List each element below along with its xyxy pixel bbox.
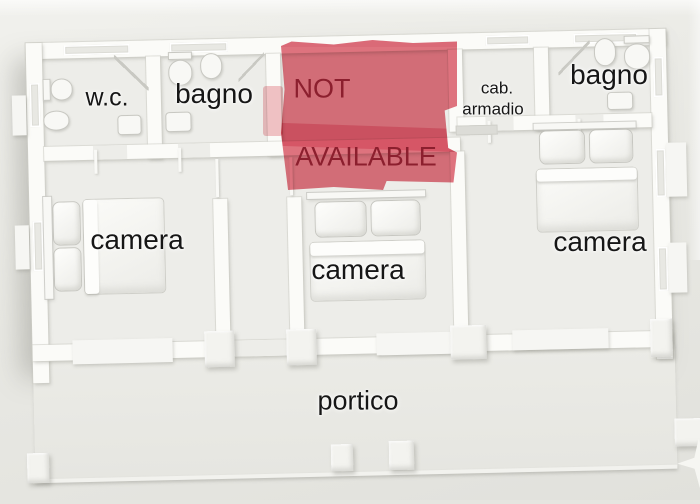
label-portico: portico (317, 388, 398, 415)
corridor-portico-opening (230, 339, 290, 356)
photo-highlight-right (688, 0, 700, 260)
sink-icon (117, 115, 141, 136)
sink-icon (607, 92, 633, 111)
window-right-bagno (653, 57, 664, 97)
bed-pillow (540, 131, 585, 164)
label-bagno-right: bagno (570, 61, 648, 89)
bed-pillow (53, 202, 80, 245)
label-cab: cab. (481, 80, 513, 97)
photo-highlight-top (0, 0, 700, 16)
pillar (204, 331, 235, 368)
overlay-spill (263, 86, 283, 136)
window-left-wc (30, 83, 41, 127)
portico-column (331, 444, 354, 471)
toilet-tank-icon (42, 79, 50, 101)
bidet-icon (43, 110, 69, 131)
french-window-camera1 (72, 338, 173, 364)
bed-pillow (590, 130, 633, 163)
label-bagno-left: bagno (175, 80, 253, 108)
sill-right-bottom (668, 242, 687, 292)
label-camera-right: camera (553, 228, 646, 256)
portico-column (389, 441, 415, 471)
window-right-camera-2 (657, 247, 668, 291)
pillar (286, 329, 317, 366)
sill-right-top (666, 142, 687, 196)
portico-column (674, 418, 700, 447)
window-right-camera-1 (655, 149, 666, 197)
door-leaf-bagno-left (178, 148, 182, 172)
closet-shelf (456, 125, 498, 136)
label-camera-middle: camera (311, 256, 404, 284)
window-top-cab-armadio (486, 35, 530, 46)
door-gap-bagno-left (178, 143, 210, 158)
sink-icon (165, 112, 191, 133)
label-armadio: armadio (462, 101, 523, 118)
bed-pillow (54, 248, 81, 291)
portico-column (27, 453, 50, 483)
window-left-camera (33, 221, 44, 271)
pillar (450, 325, 487, 360)
floor-plan-scene: w.c. bagno NOT AVAILABLE cab. armadio ba… (0, 0, 700, 500)
label-available: AVAILABLE (295, 144, 437, 171)
toilet-icon (50, 78, 72, 100)
door-leaf-wc (94, 150, 98, 174)
french-window-camera3 (512, 328, 608, 350)
pillar (650, 319, 673, 357)
wall-wc-bagno (146, 56, 162, 158)
bidet-icon (200, 53, 223, 79)
door-gap-wc (93, 145, 127, 160)
label-wc: w.c. (85, 86, 128, 111)
label-not: NOT (294, 76, 351, 103)
bed-pillow (315, 202, 366, 237)
bed-pillow (371, 200, 420, 235)
bed-blanket-fold (537, 167, 637, 181)
window-top-wc (64, 44, 130, 55)
sill-left-bottom (15, 225, 30, 269)
label-camera-left: camera (90, 226, 183, 254)
sill-left-top (12, 95, 27, 135)
